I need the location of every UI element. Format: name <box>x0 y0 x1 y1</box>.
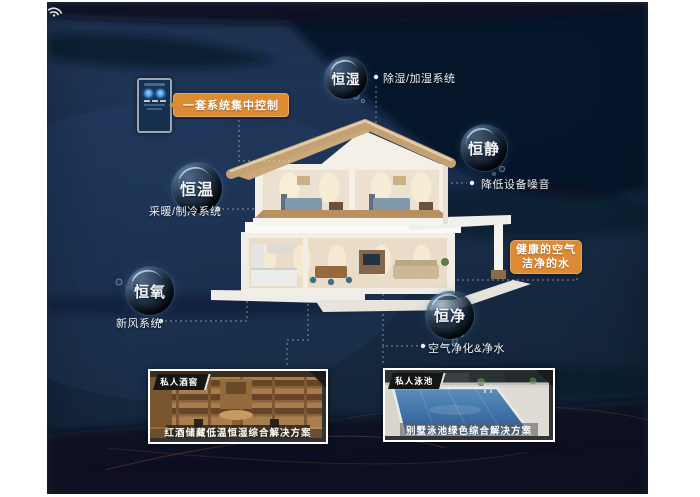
bubble-label: 恒净 <box>434 305 466 326</box>
photo-tag-label: 私人酒窖 <box>160 376 198 388</box>
photo-caption-wine: 红酒储藏低温恒湿综合解决方案 <box>166 425 310 438</box>
note-purification-system: 空气净化&净水 <box>428 340 505 356</box>
photo-card-pool: 私人泳池 别墅泳池绿色综合解决方案 <box>383 368 555 442</box>
panel-screen <box>140 81 169 130</box>
photo-tag-wine: 私人酒窖 <box>153 374 211 390</box>
bubble-heng-shi: 恒湿 <box>325 57 367 99</box>
smart-control-panel <box>137 78 172 133</box>
panel-row <box>147 108 162 110</box>
bubble-heng-jing-clean: 恒净 <box>426 291 474 339</box>
bubble-label: 恒湿 <box>332 68 361 88</box>
poster-canvas: 一套系统集中控制 健康的空气 洁净的水 恒湿 恒静 恒温 恒氧 恒净 除湿/加湿… <box>47 2 648 494</box>
bubble-label: 恒静 <box>468 138 500 159</box>
dial-icon <box>144 89 153 98</box>
corner-ribbon <box>536 370 553 387</box>
note-dehumidify-system: 除湿/加湿系统 <box>383 70 456 86</box>
panel-dials <box>144 89 165 98</box>
pool-photo: 私人泳池 别墅泳池绿色综合解决方案 <box>385 370 553 440</box>
panel-row <box>144 104 164 106</box>
water-air-line2: 洁净的水 <box>513 257 579 271</box>
control-callout-label: 一套系统集中控制 <box>183 97 279 113</box>
bubble-label: 恒氧 <box>134 281 166 302</box>
wine-cellar-photo: 私人酒窖 红酒储藏低温恒湿综合解决方案 <box>150 371 326 442</box>
note-noise-reduction: 降低设备噪音 <box>481 176 550 192</box>
photo-card-wine-cellar: 私人酒窖 红酒储藏低温恒湿综合解决方案 <box>148 369 328 444</box>
note-heating-cooling-system: 采暖/制冷系统 <box>149 203 222 219</box>
corner-ribbon <box>309 371 326 388</box>
photo-tag-pool: 私人泳池 <box>388 373 446 389</box>
bubble-heng-jing-quiet: 恒静 <box>461 125 507 171</box>
dial-icon <box>156 89 165 98</box>
photo-tag-label: 私人泳池 <box>395 375 433 387</box>
water-air-callout: 健康的空气 洁净的水 <box>510 240 582 274</box>
bubble-heng-yang: 恒氧 <box>126 267 174 315</box>
note-fresh-air-system: 新风系统 <box>116 315 162 331</box>
control-callout: 一套系统集中控制 <box>173 93 289 117</box>
water-air-line1: 健康的空气 <box>513 243 579 257</box>
bubble-label: 恒温 <box>180 176 214 200</box>
photo-caption-pool: 别墅泳池绿色综合解决方案 <box>400 423 538 436</box>
panel-statusbar <box>144 83 164 86</box>
poster-page: 一套系统集中控制 健康的空气 洁净的水 恒湿 恒静 恒温 恒氧 恒净 除湿/加湿… <box>0 0 700 497</box>
panel-chips <box>144 100 166 102</box>
